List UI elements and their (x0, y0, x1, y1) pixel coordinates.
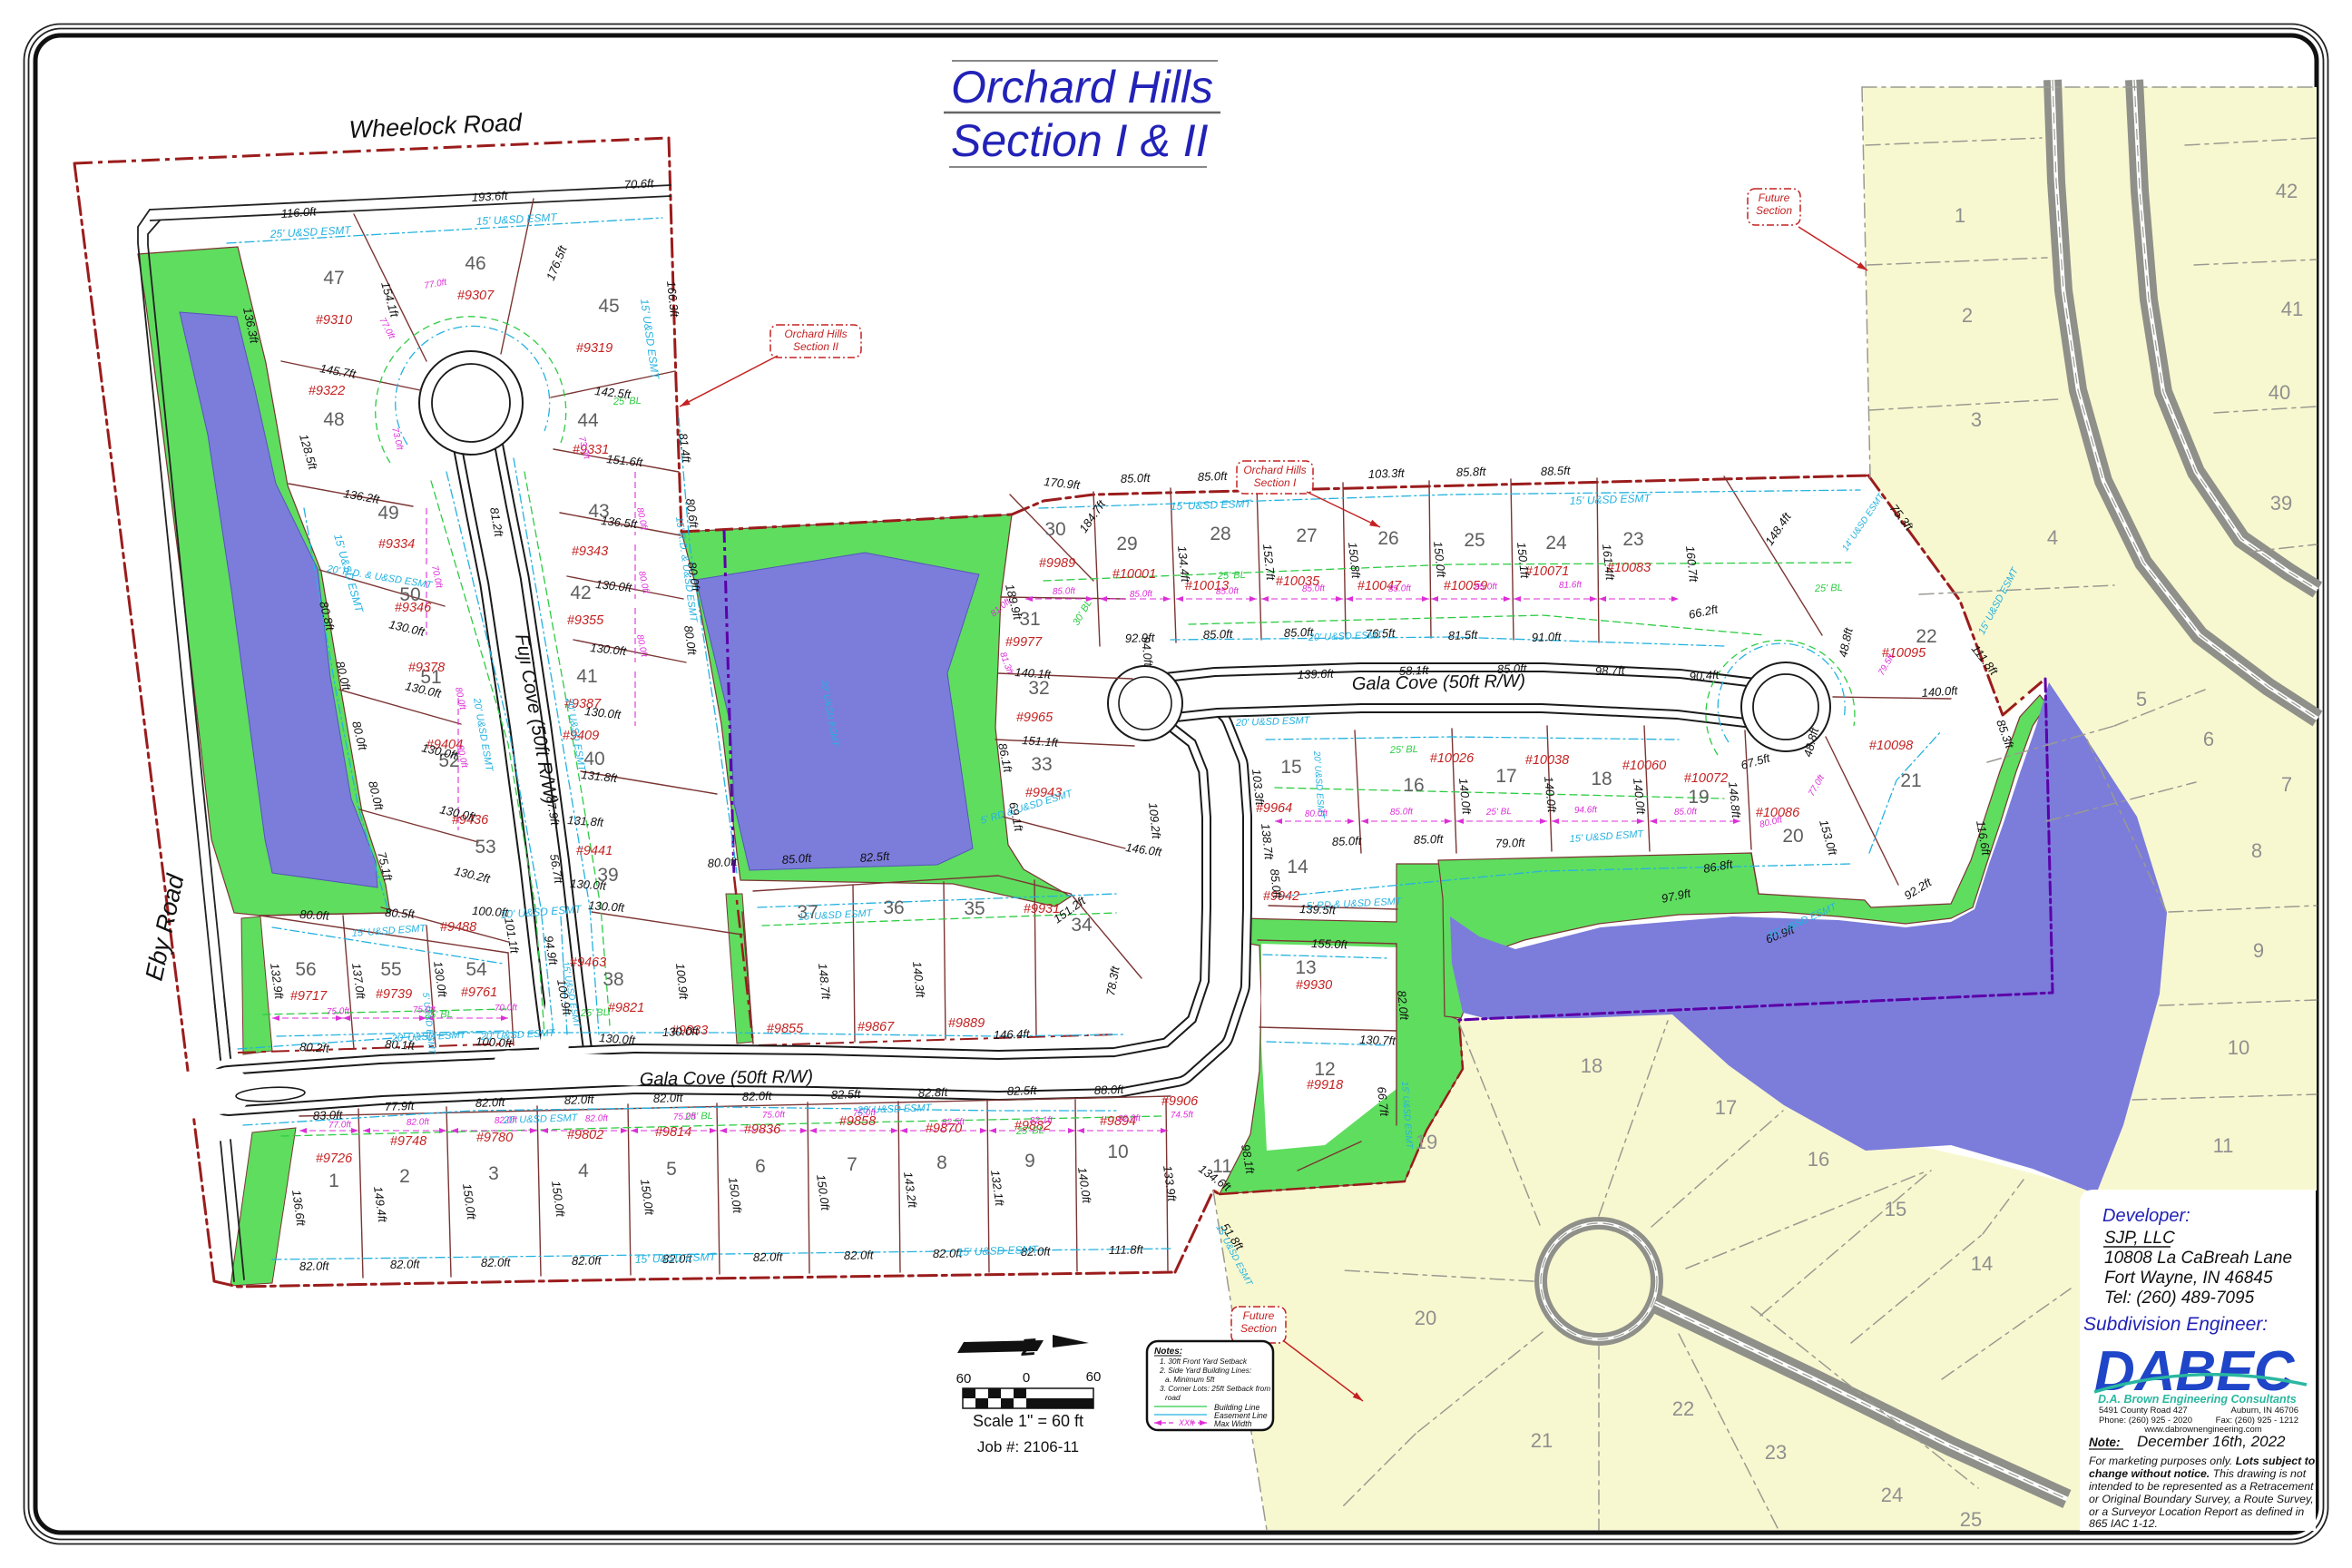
svg-text:85.0ft: 85.0ft (1121, 471, 1151, 485)
svg-text:82.0ft: 82.0ft (390, 1257, 421, 1271)
svg-text:2: 2 (1962, 304, 1973, 327)
svg-text:10: 10 (1107, 1142, 1128, 1162)
svg-text:56: 56 (295, 959, 316, 980)
svg-text:19: 19 (1688, 787, 1709, 808)
svg-text:or a Surveyor Location Report: or a Surveyor Location Report as defined… (2089, 1505, 2304, 1518)
svg-text:85.0ft: 85.0ft (1216, 586, 1240, 597)
svg-text:28: 28 (1210, 524, 1230, 544)
svg-text:42: 42 (2276, 180, 2298, 202)
svg-text:7: 7 (847, 1154, 857, 1175)
svg-text:49: 49 (377, 503, 398, 524)
svg-text:29: 29 (1116, 534, 1137, 554)
svg-text:130.0ft: 130.0ft (588, 898, 626, 915)
svg-text:34: 34 (1071, 915, 1093, 936)
svg-text:#9307: #9307 (457, 289, 495, 303)
svg-text:75.0ft: 75.0ft (673, 1112, 698, 1122)
svg-text:21: 21 (1900, 770, 1921, 791)
svg-text:116.0ft: 116.0ft (280, 204, 318, 220)
svg-text:#9488: #9488 (440, 920, 476, 935)
svg-text:140.1ft: 140.1ft (1014, 665, 1053, 681)
svg-text:85.0ft: 85.0ft (1198, 469, 1229, 484)
svg-text:6: 6 (755, 1156, 766, 1177)
svg-text:70.0ft: 70.0ft (495, 1003, 519, 1014)
svg-text:98.7ft: 98.7ft (1595, 663, 1626, 678)
svg-text:#9441: #9441 (576, 844, 612, 858)
svg-text:25' BL: 25' BL (1015, 1125, 1044, 1137)
svg-text:44: 44 (577, 410, 599, 431)
svg-text:D.A. Brown Engineering Consult: D.A. Brown Engineering Consultants (2098, 1393, 2297, 1406)
svg-text:24: 24 (1881, 1484, 1903, 1506)
svg-text:Notes:: Notes: (1154, 1347, 1182, 1357)
svg-text:82.0ft: 82.0ft (481, 1255, 512, 1269)
svg-text:39: 39 (2270, 492, 2292, 514)
svg-text:85.0ft: 85.0ft (1388, 583, 1413, 594)
svg-text:Scale 1" = 60 ft: Scale 1" = 60 ft (973, 1412, 1083, 1430)
svg-text:Gala Cove (50ft R/W): Gala Cove (50ft R/W) (640, 1067, 814, 1090)
svg-text:#9814: #9814 (655, 1125, 691, 1140)
svg-text:#9965: #9965 (1016, 710, 1053, 725)
svg-text:25: 25 (1960, 1508, 1982, 1531)
svg-text:0: 0 (1023, 1370, 1030, 1386)
svg-text:33: 33 (1031, 754, 1052, 775)
svg-text:#10026: #10026 (1430, 751, 1475, 766)
svg-text:130.0ft: 130.0ft (570, 877, 608, 893)
svg-text:#9930: #9930 (1296, 978, 1332, 993)
svg-text:#9739: #9739 (376, 987, 412, 1002)
svg-text:85.0ft: 85.0ft (1674, 807, 1699, 818)
svg-text:Section II: Section II (793, 340, 839, 353)
svg-text:9: 9 (2253, 939, 2264, 962)
svg-text:75.0ft: 75.0ft (413, 1004, 437, 1015)
svg-text:60: 60 (956, 1371, 972, 1387)
svg-text:85.0ft: 85.0ft (1497, 661, 1528, 676)
svg-text:19: 19 (1416, 1131, 1437, 1153)
svg-text:5: 5 (2136, 688, 2147, 710)
svg-text:22: 22 (1916, 626, 1936, 647)
svg-text:#9761: #9761 (461, 985, 497, 1000)
svg-text:#10098: #10098 (1869, 739, 1913, 753)
svg-text:10: 10 (2228, 1036, 2249, 1059)
svg-text:91.0ft: 91.0ft (1532, 630, 1563, 644)
svg-text:1. 30ft Front Yard Setback: 1. 30ft Front Yard Setback (1160, 1357, 1248, 1366)
svg-text:2: 2 (399, 1166, 410, 1187)
svg-text:23: 23 (1622, 529, 1643, 550)
svg-text:15: 15 (1885, 1198, 1906, 1220)
svg-text:85.0ft: 85.0ft (1130, 589, 1154, 600)
svg-text:#9748: #9748 (390, 1134, 426, 1149)
svg-text:40: 40 (2269, 381, 2290, 404)
svg-text:130.0ft: 130.0ft (599, 1031, 637, 1047)
svg-text:8: 8 (936, 1152, 947, 1173)
svg-text:14: 14 (1287, 857, 1308, 877)
svg-text:55: 55 (380, 959, 401, 980)
svg-text:or Original Boundary Survey, a: or Original Boundary Survey, a Route Sur… (2089, 1493, 2314, 1505)
svg-text:82.8ft: 82.8ft (918, 1085, 949, 1100)
svg-text:Future: Future (1759, 191, 1790, 204)
svg-text:7: 7 (2281, 773, 2292, 796)
svg-text:17: 17 (1495, 766, 1516, 787)
svg-text:#10001: #10001 (1112, 567, 1156, 582)
svg-text:75.0ft: 75.0ft (853, 1108, 877, 1119)
svg-text:75.0ft: 75.0ft (327, 1006, 351, 1017)
svg-text:Section I & II: Section I & II (951, 115, 1209, 166)
svg-text:94.6ft: 94.6ft (1574, 805, 1599, 816)
svg-text:17: 17 (1715, 1096, 1737, 1119)
svg-text:intended to be represented as: intended to be represented as a Retracem… (2089, 1480, 2314, 1493)
svg-text:#9889: #9889 (948, 1016, 985, 1031)
svg-text:35: 35 (964, 898, 985, 919)
svg-text:18: 18 (1591, 769, 1612, 789)
svg-text:80.0ft: 80.0ft (299, 907, 331, 923)
svg-text:1: 1 (328, 1171, 339, 1191)
svg-text:193.6ft: 193.6ft (471, 189, 509, 204)
svg-text:Note:: Note: (2089, 1436, 2121, 1449)
svg-text:23: 23 (1765, 1441, 1787, 1464)
svg-text:41: 41 (576, 666, 597, 687)
svg-text:54: 54 (465, 959, 487, 980)
svg-text:82.0ft: 82.0ft (564, 1093, 595, 1107)
svg-text:30: 30 (1044, 519, 1065, 540)
svg-text:85.0ft: 85.0ft (1053, 586, 1077, 597)
svg-text:130.7ft: 130.7ft (1359, 1033, 1397, 1047)
svg-text:47: 47 (323, 268, 344, 289)
svg-text:22: 22 (1672, 1397, 1694, 1420)
svg-text:25' BL: 25' BL (612, 396, 642, 407)
svg-text:70.6ft: 70.6ft (623, 176, 655, 191)
svg-text:16: 16 (1808, 1148, 1829, 1171)
svg-text:81.6ft: 81.6ft (1559, 580, 1583, 591)
svg-text:15: 15 (1280, 757, 1301, 778)
svg-text:12: 12 (1314, 1059, 1335, 1080)
svg-text:9: 9 (1024, 1151, 1035, 1171)
svg-text:27: 27 (1296, 525, 1317, 546)
svg-text:79.0ft: 79.0ft (1495, 836, 1526, 850)
svg-text:25' BL: 25' BL (580, 1007, 609, 1019)
svg-text:80.0ft: 80.0ft (1305, 808, 1329, 819)
svg-text:25: 25 (1464, 530, 1485, 551)
svg-text:#9989: #9989 (1039, 556, 1075, 571)
svg-text:140.0ft: 140.0ft (1921, 683, 1959, 700)
svg-text:85.0ft: 85.0ft (1302, 583, 1327, 594)
svg-text:Orchard Hills: Orchard Hills (951, 62, 1213, 113)
svg-text:a. Minimum 5ft: a. Minimum 5ft (1165, 1375, 1215, 1384)
svg-text:60: 60 (1086, 1369, 1102, 1385)
svg-text:82.0ft: 82.0ft (495, 1115, 519, 1126)
svg-text:85.0ft: 85.0ft (1332, 834, 1363, 848)
svg-text:82.5ft: 82.5ft (1007, 1083, 1038, 1098)
svg-text:11: 11 (2213, 1134, 2234, 1157)
svg-text:82.0ft: 82.0ft (844, 1248, 875, 1262)
svg-text:20: 20 (1415, 1307, 1436, 1329)
svg-text:45: 45 (598, 296, 619, 317)
svg-text:Developer:: Developer: (2102, 1206, 2190, 1226)
svg-text:6: 6 (2203, 728, 2214, 750)
svg-text:5491 County Road 427: 5491 County Road 427 (2099, 1406, 2188, 1416)
svg-text:Subdivision Engineer:: Subdivision Engineer: (2083, 1314, 2268, 1335)
svg-text:#9717: #9717 (290, 989, 328, 1004)
svg-text:130.0ft: 130.0ft (662, 1024, 701, 1039)
svg-text:42: 42 (570, 583, 591, 603)
svg-text:16: 16 (1403, 775, 1424, 796)
svg-text:#9463: #9463 (570, 955, 606, 970)
svg-text:80.2ft: 80.2ft (299, 1040, 331, 1055)
svg-text:#9918: #9918 (1307, 1078, 1343, 1093)
svg-text:82.5ft: 82.5ft (942, 1117, 966, 1128)
svg-text:#9906: #9906 (1161, 1094, 1199, 1109)
svg-text:80.5ft: 80.5ft (385, 906, 416, 921)
svg-text:#10060: #10060 (1622, 759, 1666, 773)
svg-text:85.0ft: 85.0ft (781, 851, 813, 867)
svg-text:change without notice. This d: change without notice. This drawing is n… (2089, 1467, 2307, 1480)
svg-text:90.4ft: 90.4ft (1689, 668, 1720, 683)
svg-text:Max Width: Max Width (1214, 1419, 1252, 1428)
svg-text:4: 4 (578, 1161, 589, 1181)
svg-text:Auburn, IN 46706: Auburn, IN 46706 (2231, 1406, 2298, 1416)
svg-text:21: 21 (1531, 1429, 1553, 1452)
svg-text:46: 46 (465, 253, 485, 274)
svg-text:#9780: #9780 (476, 1131, 513, 1145)
svg-text:82.1ft: 82.1ft (1030, 1115, 1054, 1126)
svg-text:81.5ft: 81.5ft (1448, 628, 1479, 642)
svg-text:#9346: #9346 (395, 601, 432, 615)
svg-text:#10038: #10038 (1525, 753, 1569, 768)
svg-text:#10072: #10072 (1684, 771, 1728, 786)
svg-text:131.8ft: 131.8ft (567, 813, 605, 829)
svg-text:Orchard Hills: Orchard Hills (784, 328, 847, 340)
svg-text:#9855: #9855 (767, 1022, 804, 1036)
svg-text:Tel: (260) 489-7095: Tel: (260) 489-7095 (2104, 1289, 2255, 1308)
svg-text:865 IAC 1-12.: 865 IAC 1-12. (2089, 1517, 2158, 1530)
svg-text:Fort Wayne, IN 46845: Fort Wayne, IN 46845 (2104, 1269, 2273, 1288)
svg-text:Section: Section (1756, 204, 1792, 217)
svg-text:53: 53 (475, 837, 495, 857)
svg-text:#9378: #9378 (408, 661, 445, 675)
svg-text:10808 La CaBreah Lane: 10808 La CaBreah Lane (2104, 1249, 2292, 1268)
svg-text:SJP, LLC: SJP, LLC (2104, 1229, 2175, 1248)
svg-text:Future: Future (1243, 1309, 1275, 1322)
svg-text:#9322: #9322 (309, 384, 345, 398)
svg-text:82.5ft: 82.5ft (859, 849, 891, 865)
svg-text:41: 41 (2281, 298, 2303, 320)
svg-text:#9867: #9867 (857, 1020, 895, 1034)
svg-text:#9334: #9334 (378, 537, 415, 552)
svg-text:88.5ft: 88.5ft (1541, 464, 1572, 478)
svg-text:82.0ft: 82.0ft (299, 1259, 330, 1273)
svg-text:25' BL: 25' BL (1217, 570, 1246, 582)
svg-text:82.0ft: 82.0ft (742, 1089, 773, 1103)
svg-text:80.0ft: 80.0ft (707, 855, 739, 870)
svg-text:75.0ft: 75.0ft (762, 1110, 787, 1121)
svg-text:151.1ft: 151.1ft (1022, 733, 1060, 750)
svg-text:48: 48 (323, 409, 344, 430)
svg-text:74.5ft: 74.5ft (1171, 1110, 1195, 1121)
svg-text:139.6ft: 139.6ft (1298, 667, 1336, 681)
svg-text:3: 3 (488, 1163, 499, 1184)
svg-text:#9836: #9836 (744, 1122, 781, 1137)
svg-text:14: 14 (1971, 1252, 1993, 1275)
svg-text:26: 26 (1377, 528, 1398, 549)
svg-text:2. Side Yard Building Lines:: 2. Side Yard Building Lines: (1159, 1366, 1251, 1375)
svg-text:25' BL: 25' BL (1485, 807, 1512, 818)
svg-text:8: 8 (2251, 839, 2262, 862)
svg-text:77.0ft: 77.0ft (328, 1120, 353, 1131)
svg-text:#9726: #9726 (316, 1151, 353, 1166)
svg-text:88.0ft: 88.0ft (1094, 1083, 1125, 1097)
svg-text:1: 1 (1955, 204, 1965, 227)
svg-text:82.5ft: 82.5ft (831, 1087, 862, 1102)
svg-text:Job #: 2106-11: Job #: 2106-11 (977, 1438, 1079, 1455)
svg-text:82.0ft: 82.0ft (753, 1249, 784, 1264)
svg-text:3. Corner Lots: 25ft Setback f: 3. Corner Lots: 25ft Setback from (1160, 1384, 1270, 1393)
svg-text:82.0ft: 82.0ft (572, 1253, 603, 1268)
svg-text:85.0ft: 85.0ft (1414, 832, 1445, 847)
svg-text:82.0ft: 82.0ft (475, 1095, 506, 1110)
svg-text:road: road (1165, 1393, 1181, 1402)
svg-text:#9343: #9343 (572, 544, 608, 559)
svg-text:For marketing purposes only.: For marketing purposes only. Lots subjec… (2089, 1455, 2316, 1467)
svg-text:Orchard Hills: Orchard Hills (1243, 464, 1306, 476)
svg-text:24: 24 (1545, 533, 1567, 554)
svg-text:#9319: #9319 (576, 341, 612, 356)
svg-text:85.8ft: 85.8ft (1456, 465, 1487, 479)
svg-text:December 16th, 2022: December 16th, 2022 (2137, 1433, 2286, 1450)
svg-text:36: 36 (883, 897, 904, 918)
svg-text:85.0ft: 85.0ft (1390, 807, 1415, 818)
svg-text:#9355: #9355 (567, 613, 604, 628)
svg-text:Section I: Section I (1254, 476, 1297, 489)
svg-text:82.0ft: 82.0ft (585, 1113, 610, 1124)
svg-text:111.8ft: 111.8ft (1109, 1242, 1144, 1257)
svg-text:#9977: #9977 (1005, 635, 1043, 650)
svg-text:146.4ft: 146.4ft (994, 1027, 1032, 1042)
svg-text:XXft: XXft (1178, 1418, 1195, 1427)
svg-text:4: 4 (2047, 526, 2058, 549)
svg-text:82.0ft: 82.0ft (1118, 1113, 1142, 1124)
svg-text:58.1ft: 58.1ft (1399, 663, 1430, 678)
svg-text:13: 13 (1295, 957, 1316, 978)
svg-text:18: 18 (1581, 1054, 1602, 1077)
svg-text:#9802: #9802 (567, 1128, 603, 1142)
svg-text:Z: Z (1019, 1333, 1037, 1361)
svg-text:Section: Section (1240, 1322, 1277, 1335)
svg-text:82.0ft: 82.0ft (407, 1117, 431, 1128)
svg-text:82.0ft: 82.0ft (653, 1091, 684, 1105)
svg-text:25' BL: 25' BL (1814, 583, 1843, 594)
svg-text:38: 38 (603, 969, 623, 990)
svg-text:20: 20 (1782, 826, 1803, 847)
svg-text:155.0ft: 155.0ft (1311, 936, 1349, 951)
svg-text:25' BL: 25' BL (1389, 744, 1418, 756)
svg-text:5: 5 (666, 1159, 677, 1180)
svg-text:85.0ft: 85.0ft (1203, 627, 1234, 642)
svg-text:85.0ft: 85.0ft (1475, 582, 1499, 593)
svg-text:3: 3 (1971, 408, 1982, 431)
svg-text:#9821: #9821 (608, 1001, 644, 1015)
svg-text:#9310: #9310 (316, 313, 352, 328)
svg-text:103.3ft: 103.3ft (1368, 466, 1406, 481)
svg-text:77.9ft: 77.9ft (385, 1099, 416, 1113)
